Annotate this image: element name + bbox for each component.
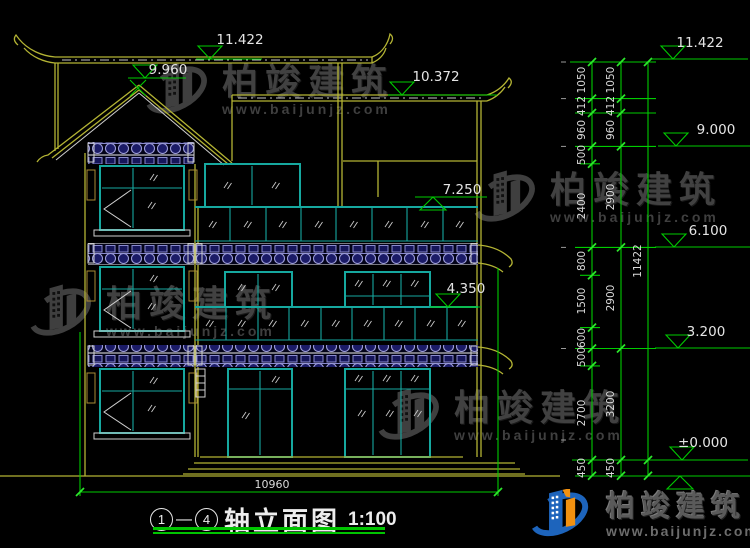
secondary-roof [232, 78, 511, 101]
width-dimension-label: 10960 [255, 478, 290, 491]
elevation-marker-gable: 9.960 [128, 62, 187, 78]
balcony2-elevation-label: 4.350 [447, 281, 486, 297]
width-dimension: 10960 [76, 268, 502, 496]
plinth-steps [0, 457, 560, 476]
cad-elevation-screenshot: { "watermark": {"brand": "柏竣建筑", "url": … [0, 0, 750, 548]
dimension-chain-inner-labels: 1050 412 960 500 2400 800 1500 600 500 2… [576, 67, 588, 478]
roof2-elevation-label: 10.372 [412, 69, 459, 85]
elevation-drawing: 11.422 10.372 9.960 7.250 4.350 10960 10… [0, 0, 750, 548]
axis-separator: — [176, 511, 192, 529]
gable-elevation-label: 9.960 [149, 62, 188, 78]
level-label-3200: 3.200 [687, 324, 726, 340]
balcony-rail-2f [195, 307, 478, 340]
window-2f-right [345, 272, 430, 307]
dim-inner-3: 500 [576, 145, 588, 165]
title-underline-thick [153, 527, 385, 530]
door-1f-left [228, 369, 292, 457]
elevation-marker-ridge: 11.422 [196, 32, 264, 59]
dim-inner-2: 960 [576, 120, 588, 140]
elevation-marker-balcony3: 7.250 [415, 182, 487, 210]
door-1f-right [345, 369, 430, 457]
wall-lines [55, 63, 481, 476]
brand-logo: 柏竣建筑 www.baijunjz.com [518, 489, 750, 548]
dim-inner-5: 800 [576, 251, 588, 271]
brand-logo-url: www.baijunjz.com [606, 523, 750, 539]
level-label-top: 11.422 [676, 35, 723, 51]
dim-inner-9: 2700 [576, 400, 588, 427]
bay-window-3f [87, 166, 197, 236]
dim-inner-6: 1500 [576, 288, 588, 315]
level-marker-3200: 3.200 [655, 324, 750, 348]
dim-outer-4: 2900 [605, 285, 617, 312]
dim-inner-7: 600 [576, 328, 588, 348]
dimension-chain-outer-labels: 1050 412 960 2900 2900 3200 450 [605, 67, 617, 478]
ridge-elevation-label: 11.422 [216, 32, 263, 48]
level-label-zero: ±0.000 [678, 435, 728, 451]
level-marker-top: 11.422 [652, 35, 748, 59]
tile-band-top [88, 142, 194, 164]
dim-inner-4: 2400 [576, 193, 588, 220]
level-label-6100: 6.100 [689, 223, 728, 239]
dim-outer-1: 412 [605, 96, 617, 116]
level-marker-zero: ±0.000 [667, 435, 728, 489]
brand-logo-text: 柏竣建筑 [606, 493, 750, 522]
dim-outer-0: 1050 [605, 67, 617, 94]
dim-outer-2: 960 [605, 120, 617, 140]
dim-outer-6: 450 [605, 458, 617, 478]
window-3f-pair [205, 164, 300, 207]
level-marker-9000: 9.000 [658, 122, 750, 146]
window-2f-left [225, 272, 292, 307]
bay-window-2f [87, 267, 197, 337]
dim-inner-1: 412 [576, 96, 588, 116]
brand-logo-icon [518, 489, 602, 548]
dim-outer-5: 3200 [605, 391, 617, 418]
dim-inner-8: 500 [576, 347, 588, 367]
dim-inner-0: 1050 [576, 67, 588, 94]
dim-inner-10: 450 [576, 458, 588, 478]
elevation-marker-roof2: 10.372 [388, 69, 497, 95]
balcony-rail-3f [195, 207, 478, 241]
level-label-9000: 9.000 [697, 122, 736, 138]
dim-total-height: 11422 [632, 244, 644, 277]
balcony3-elevation-label: 7.250 [443, 182, 482, 198]
title-underline-thin [153, 532, 385, 534]
bay-window-1f [87, 369, 197, 439]
dim-outer-3: 2900 [605, 184, 617, 211]
level-marker-6100: 6.100 [655, 223, 750, 247]
